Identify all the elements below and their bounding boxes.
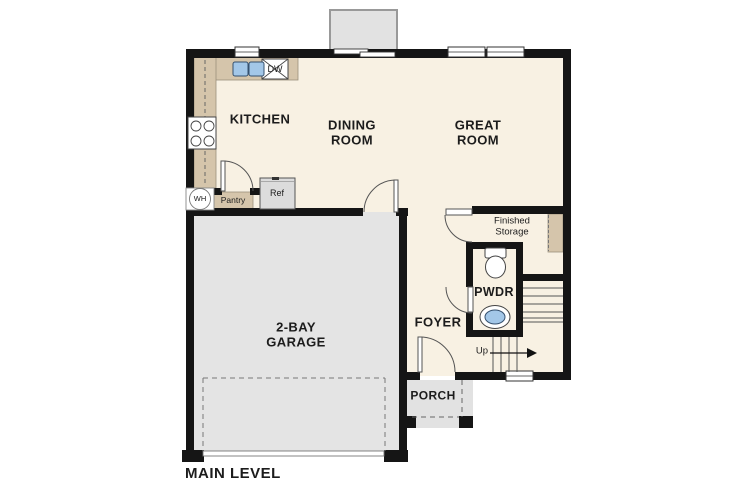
kitchen-window	[235, 47, 259, 57]
storage-shelf	[548, 214, 563, 252]
garage-door	[203, 451, 384, 456]
floor-areas	[190, 53, 567, 456]
floor-plan-drawing	[0, 0, 750, 500]
stair-window	[506, 371, 533, 381]
floor-plan: KITCHEN DINING ROOM GREAT ROOM 2-BAY GAR…	[0, 0, 750, 500]
rear-patio	[330, 10, 397, 53]
kitchen-sink-icon	[233, 62, 264, 76]
stove-icon	[188, 117, 216, 149]
powder-sink-icon	[480, 306, 510, 329]
great-room-window-1	[448, 47, 485, 57]
dishwasher-icon	[262, 59, 288, 79]
great-room-window-2	[487, 47, 524, 57]
toilet-icon	[485, 248, 506, 278]
water-heater-icon	[186, 188, 214, 210]
refrigerator-icon	[260, 177, 295, 209]
